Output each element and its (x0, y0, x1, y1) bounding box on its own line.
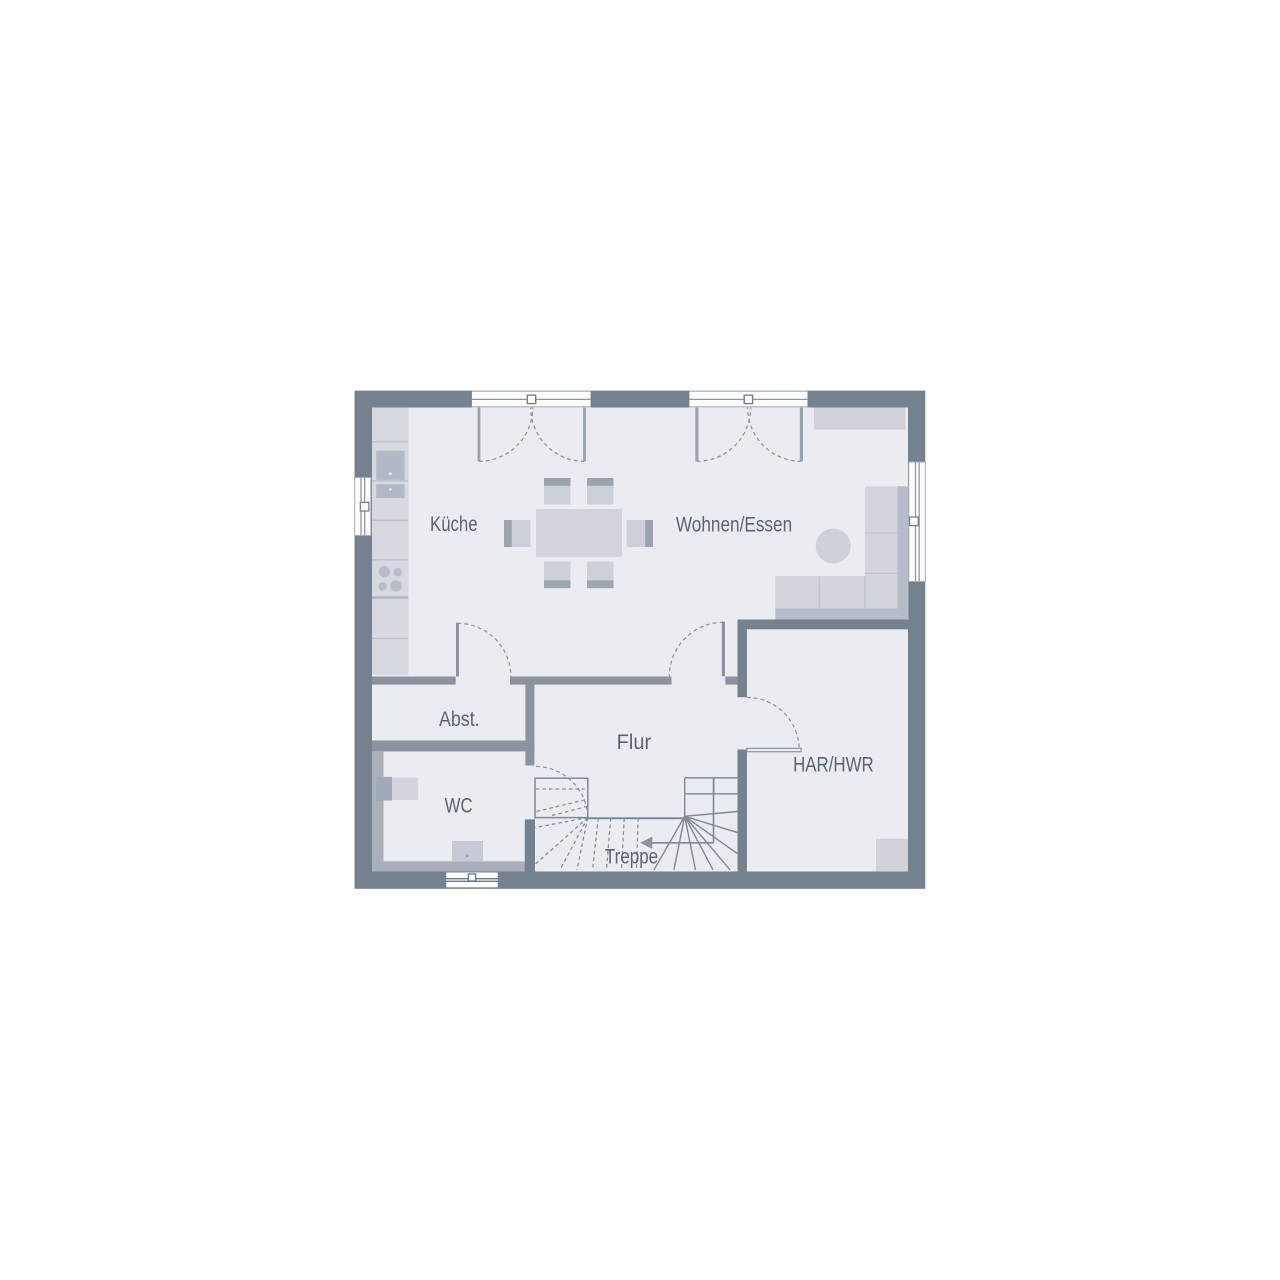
svg-text:Flur: Flur (617, 730, 652, 754)
svg-text:Küche: Küche (430, 513, 478, 536)
svg-text:HAR/HWR: HAR/HWR (793, 754, 874, 777)
svg-text:Abst.: Abst. (439, 708, 480, 732)
svg-text:WC: WC (445, 794, 473, 817)
svg-text:Wohnen/Essen: Wohnen/Essen (676, 513, 792, 537)
svg-text:Treppe: Treppe (605, 845, 658, 869)
